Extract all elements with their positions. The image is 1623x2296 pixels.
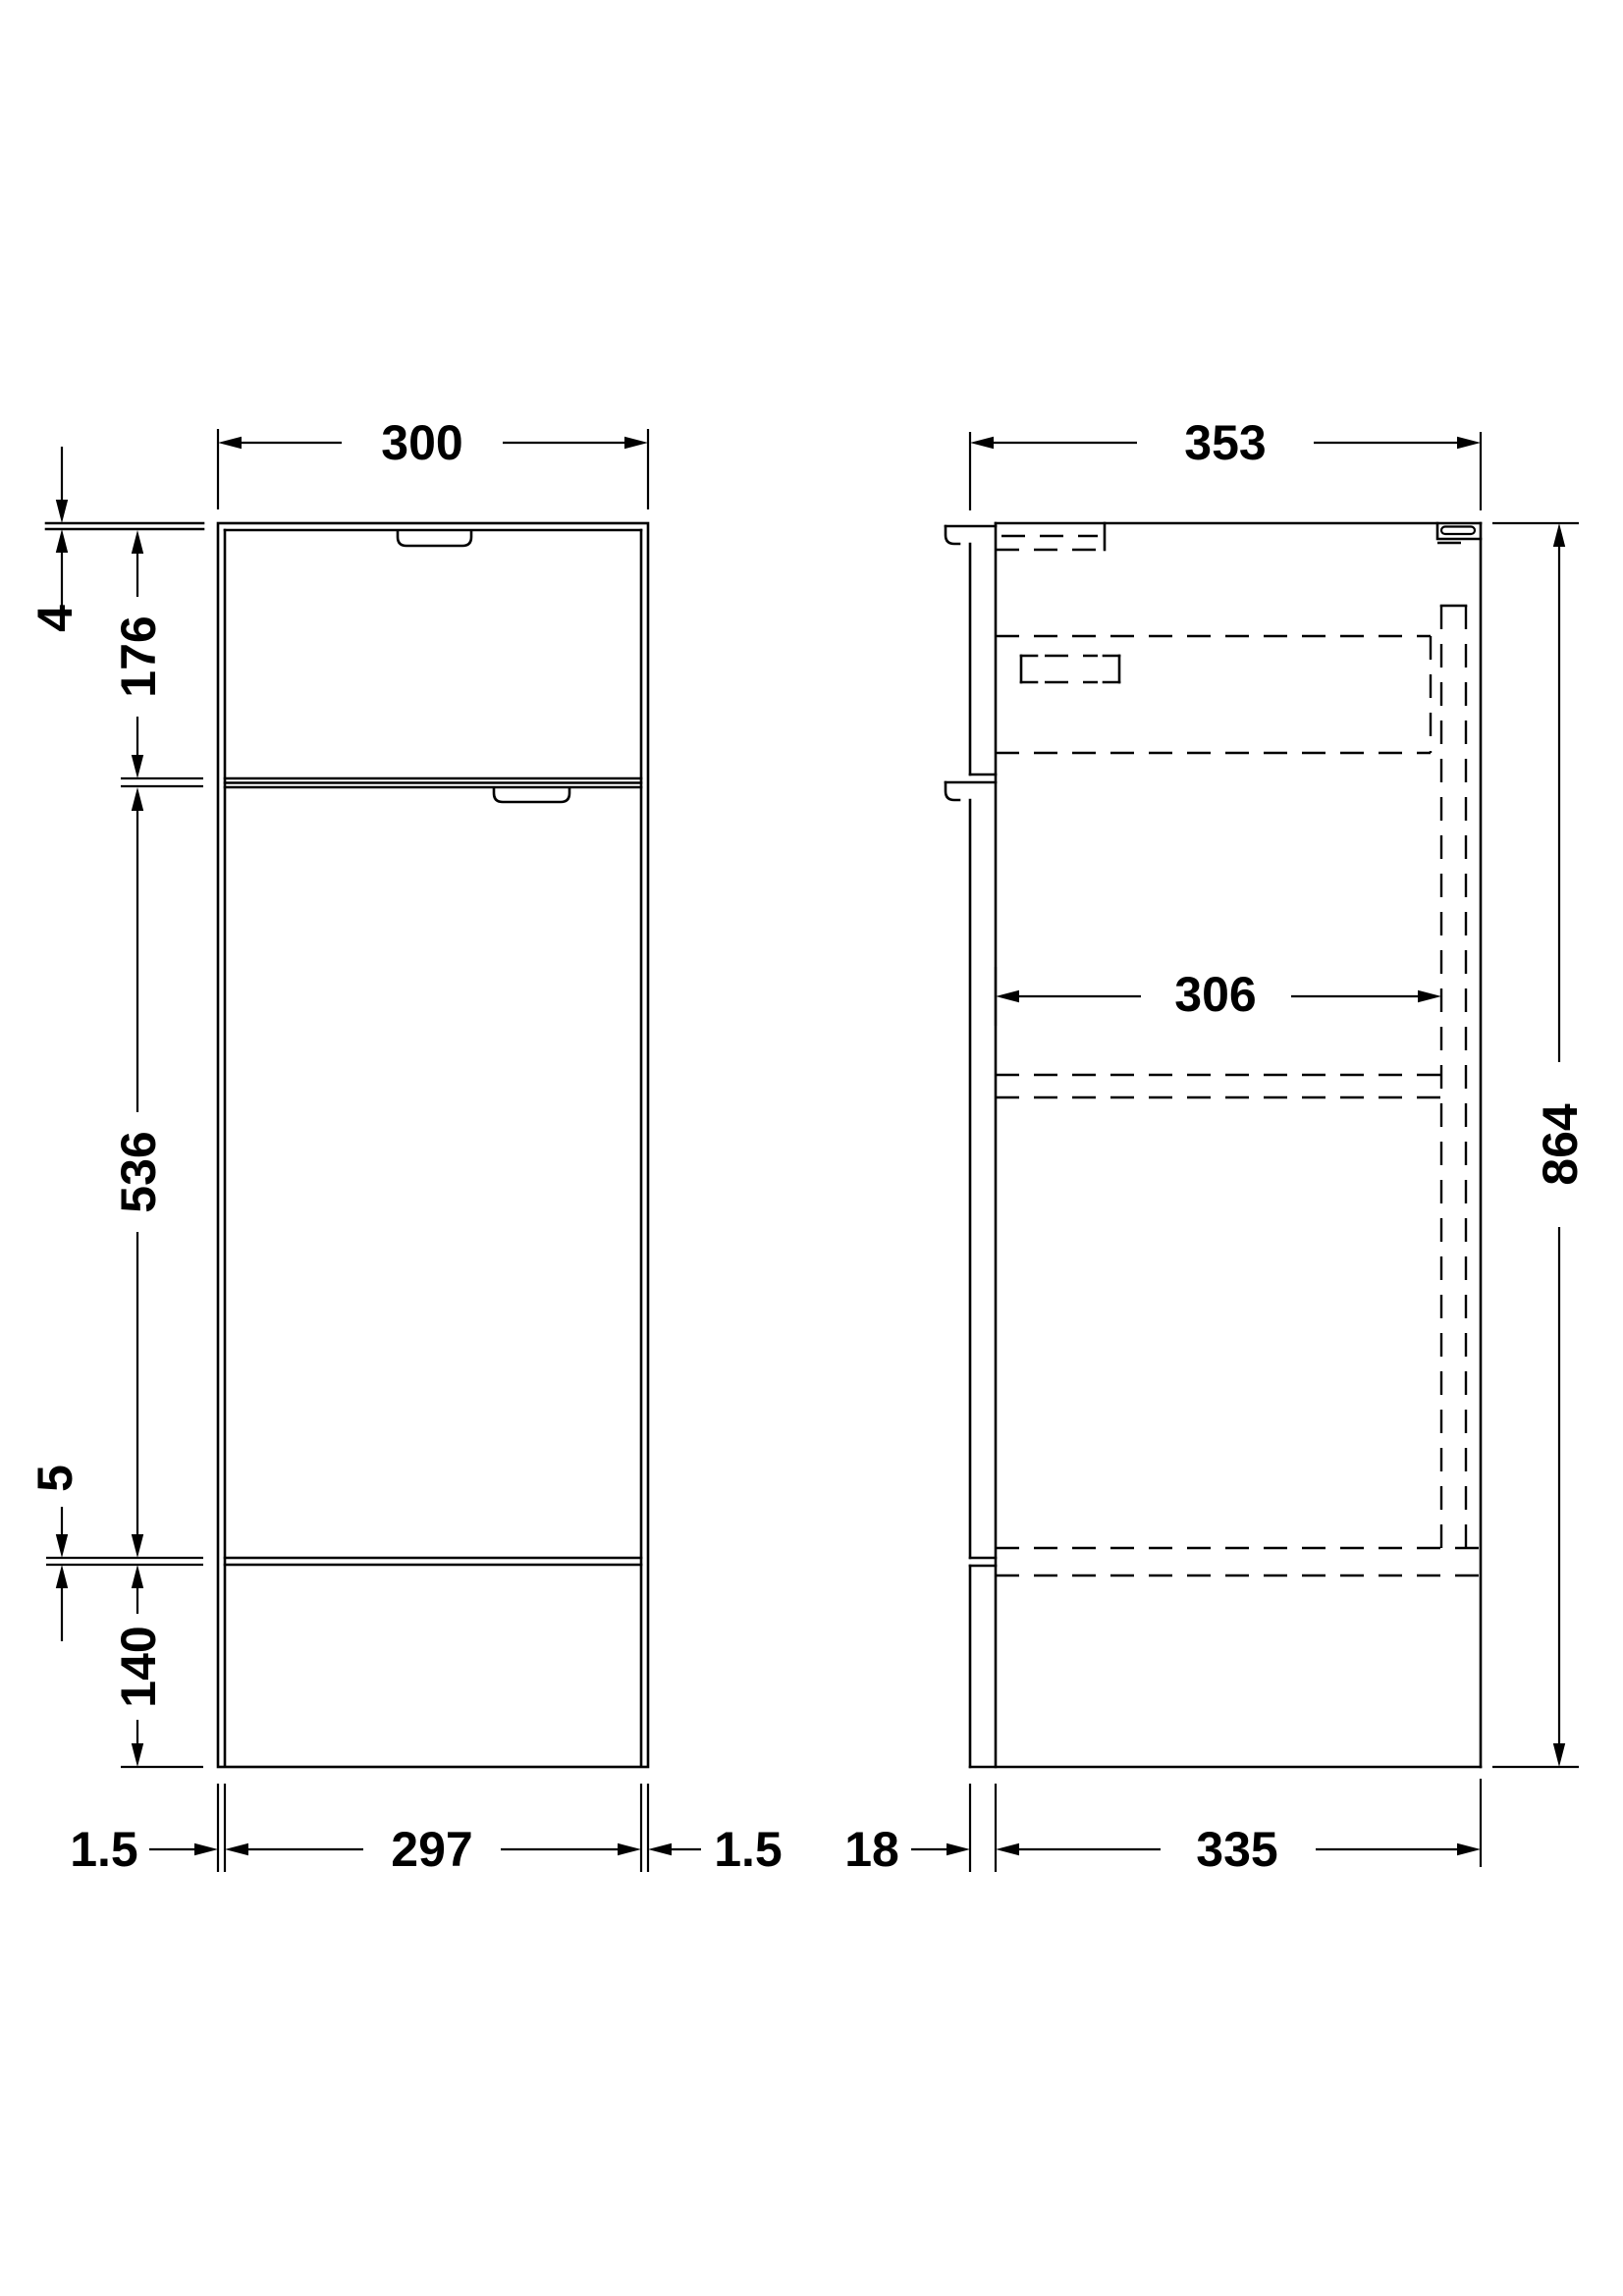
- dim-label-bottom-gap: 5: [27, 1465, 82, 1492]
- dim-label-door-width: 297: [391, 1822, 472, 1877]
- dim-label-front-thickness: 18: [844, 1822, 899, 1877]
- dim-label-width-top: 300: [381, 415, 462, 470]
- dim-label-door-height: 536: [111, 1131, 166, 1212]
- cabinet-dimension-drawing: 300 4 176 536 5: [0, 0, 1623, 2296]
- dim-label-plinth-height: 140: [111, 1626, 166, 1707]
- dim-label-carcass-depth: 335: [1196, 1822, 1277, 1877]
- dim-label-left-reveal: 1.5: [70, 1822, 138, 1877]
- dim-label-total-height: 864: [1533, 1103, 1588, 1186]
- dim-label-total-depth: 353: [1184, 415, 1266, 470]
- dim-label-worktop-thickness: 4: [27, 605, 82, 632]
- dim-label-right-reveal: 1.5: [714, 1822, 783, 1877]
- drawing-background: [0, 0, 1623, 2296]
- dim-label-drawer-height: 176: [111, 615, 166, 697]
- dim-label-internal-depth: 306: [1174, 967, 1256, 1022]
- technical-drawing-page: 300 4 176 536 5: [0, 0, 1623, 2296]
